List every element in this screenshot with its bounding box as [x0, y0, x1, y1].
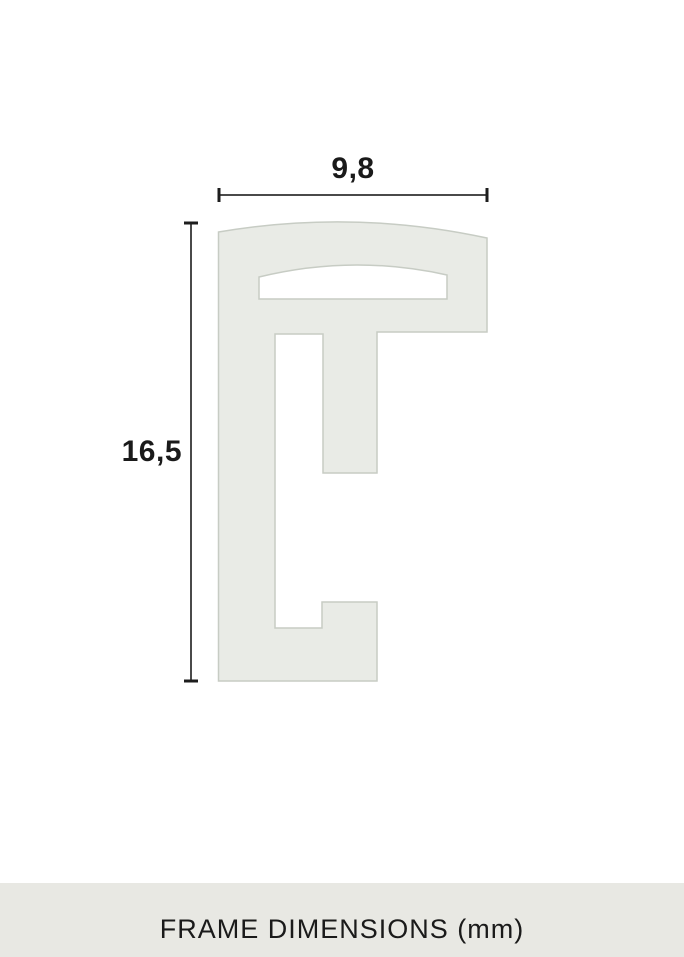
footer-bar: FRAME DIMENSIONS (mm): [0, 883, 684, 957]
width-dimension-label: 9,8: [219, 153, 487, 185]
footer-caption: FRAME DIMENSIONS (mm): [0, 913, 684, 945]
frame-profile-drawing: [0, 0, 684, 957]
page-background: 9,8 16,5 FRAME DIMENSIONS (mm): [0, 0, 684, 957]
frame-profile-shape: [219, 222, 488, 681]
height-dimension-label: 16,5: [98, 436, 182, 468]
